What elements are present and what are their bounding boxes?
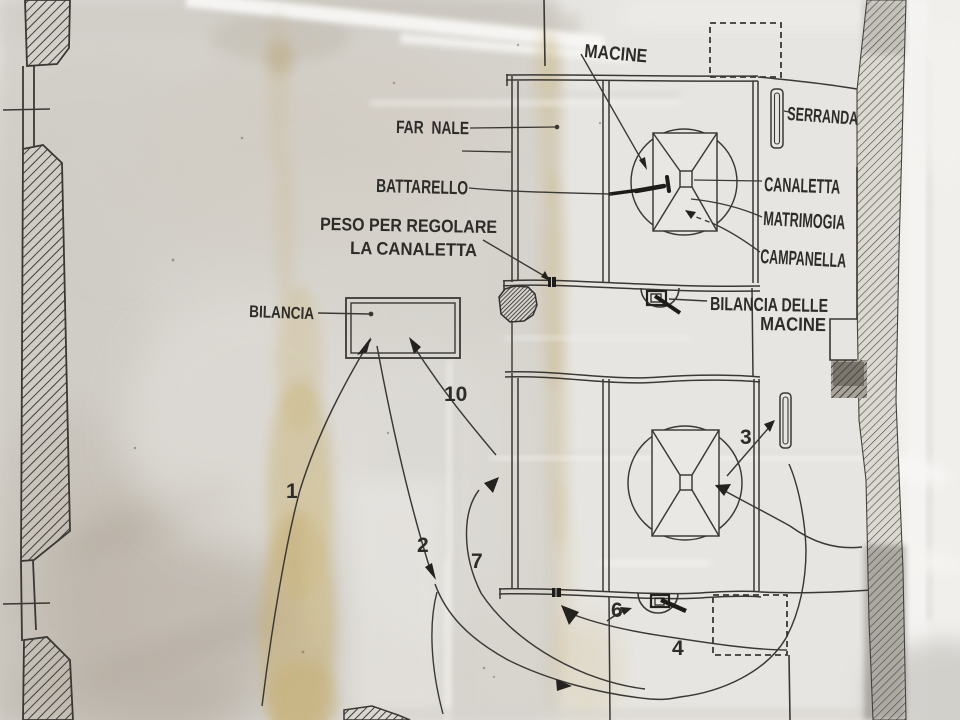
svg-text:MATRIMOGIA: MATRIMOGIA [763,208,846,234]
svg-text:10: 10 [444,383,467,406]
svg-text:6: 6 [611,599,623,622]
svg-text:LA CANALETTA: LA CANALETTA [350,238,477,260]
svg-text:FAR NALE: FAR NALE [396,117,469,138]
svg-text:1: 1 [286,480,298,503]
svg-text:BILANCIA: BILANCIA [249,302,315,323]
svg-text:3: 3 [740,426,752,449]
svg-text:4: 4 [672,637,684,660]
svg-text:PESO PER REGOLARE: PESO PER REGOLARE [320,214,497,237]
svg-text:BATTARELLO: BATTARELLO [376,176,469,199]
svg-text:7: 7 [471,550,483,573]
svg-text:2: 2 [417,534,429,557]
svg-text:CANALETTA: CANALETTA [764,174,841,199]
svg-text:CAMPANELLA: CAMPANELLA [760,246,847,272]
svg-text:MACINE: MACINE [760,314,826,336]
